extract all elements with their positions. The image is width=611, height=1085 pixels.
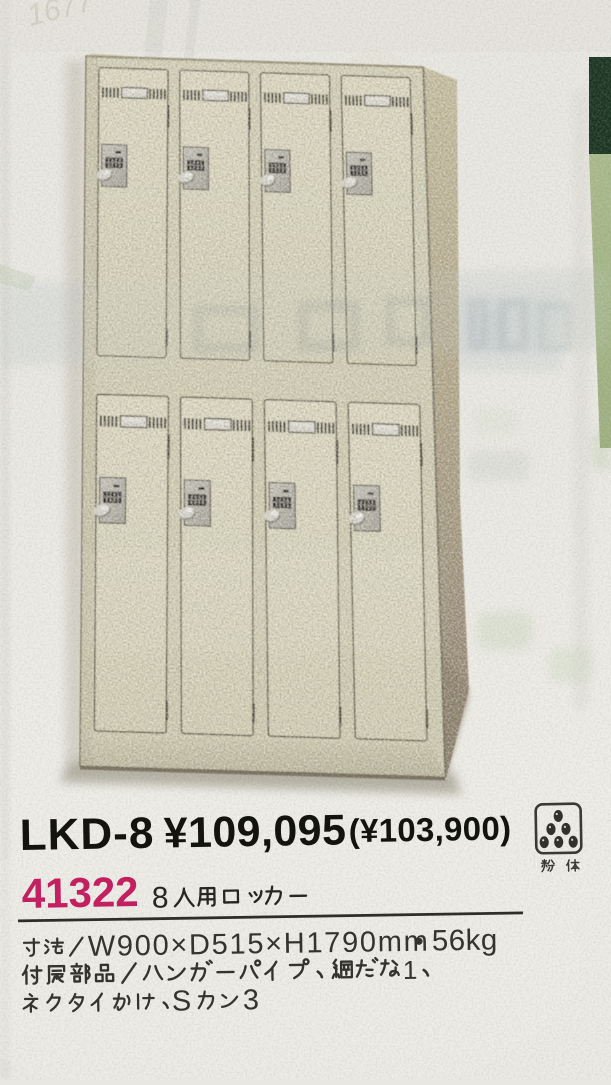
svg-text:3: 3: [243, 984, 260, 1016]
svg-text:56kg: 56kg: [432, 923, 498, 957]
svg-text:S: S: [172, 985, 192, 1017]
svg-text:8: 8: [152, 881, 169, 914]
svg-text:(¥103,900): (¥103,900): [348, 809, 511, 849]
svg-text:W900×D515×H1790mm: W900×D515×H1790mm: [88, 926, 430, 963]
svg-text:41322: 41322: [21, 868, 139, 917]
svg-text:1: 1: [403, 955, 418, 985]
svg-text:LKD-8: LKD-8: [19, 809, 154, 860]
svg-text:¥109,095: ¥109,095: [163, 806, 346, 857]
